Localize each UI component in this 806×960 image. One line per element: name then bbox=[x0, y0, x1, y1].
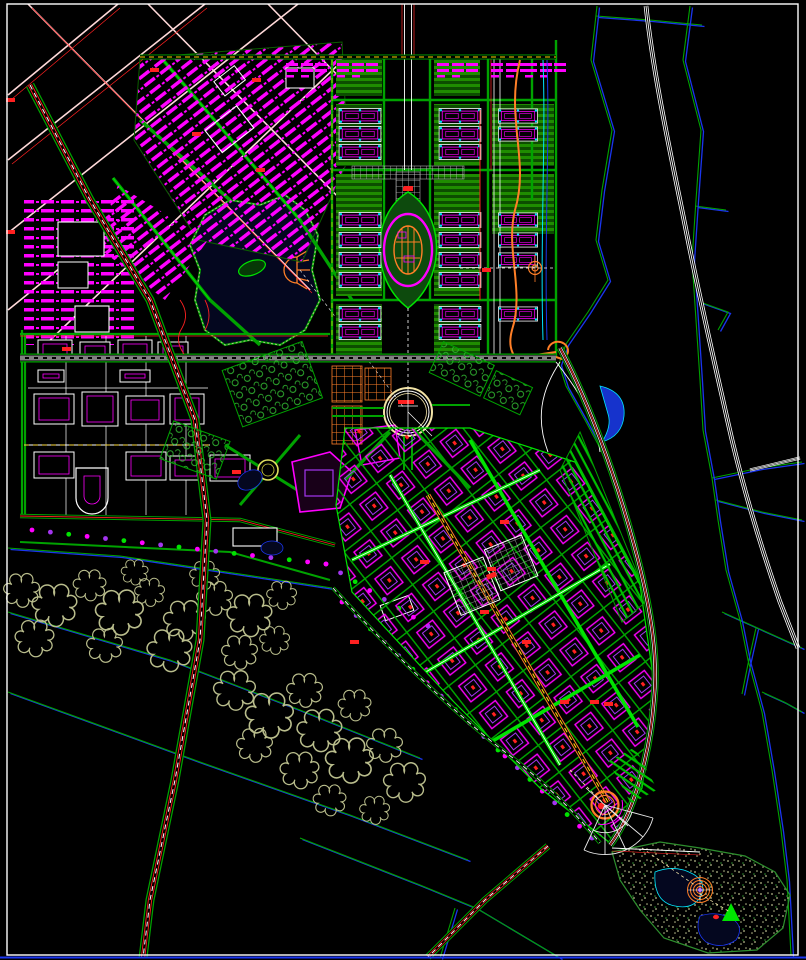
street-tree-dot bbox=[268, 555, 273, 560]
white-building bbox=[38, 370, 64, 382]
red-annotation-mark bbox=[256, 168, 265, 172]
red-annotation-mark bbox=[500, 520, 509, 524]
red-annotation-mark bbox=[604, 702, 613, 706]
red-annotation-mark bbox=[487, 567, 496, 571]
housing-unit bbox=[339, 306, 381, 321]
cad-viewport: { "palette": { "background": "#000000", … bbox=[0, 0, 806, 960]
red-annotation-mark bbox=[350, 640, 359, 644]
housing-unit bbox=[498, 109, 537, 123]
red-annotation-mark bbox=[232, 470, 241, 474]
street-tree-dot bbox=[338, 570, 343, 575]
street-tree-dot bbox=[158, 542, 163, 547]
white-building bbox=[120, 370, 150, 382]
plaza-red-marker bbox=[398, 400, 414, 404]
housing-unit bbox=[339, 144, 381, 159]
red-annotation-mark bbox=[420, 560, 429, 564]
park-circular-pavilion bbox=[688, 878, 713, 903]
small-pond-2 bbox=[261, 541, 283, 555]
park-red-marker bbox=[713, 915, 719, 919]
housing-unit bbox=[498, 253, 537, 267]
red-annotation-mark bbox=[192, 132, 201, 136]
zone-b-white-building-1 bbox=[58, 222, 104, 256]
red-annotation-mark bbox=[522, 640, 531, 644]
master-plan-drawing bbox=[0, 0, 806, 960]
housing-unit bbox=[439, 212, 481, 227]
street-tree-dot bbox=[565, 812, 570, 817]
street-tree-dot bbox=[140, 540, 145, 545]
housing-unit bbox=[439, 306, 481, 321]
west-district-large-hall bbox=[75, 306, 109, 332]
housing-unit bbox=[439, 126, 481, 141]
street-tree-dot bbox=[324, 562, 329, 567]
housing-unit bbox=[339, 324, 381, 339]
housing-unit bbox=[439, 324, 481, 339]
zone-b-white-building-2 bbox=[58, 262, 88, 288]
street-tree-dot bbox=[30, 528, 35, 533]
street-tree-dot bbox=[213, 549, 218, 554]
street-tree-dot bbox=[66, 532, 71, 537]
red-annotation-mark bbox=[482, 268, 491, 272]
housing-unit bbox=[498, 233, 537, 247]
housing-unit bbox=[339, 272, 381, 287]
housing-unit bbox=[339, 232, 381, 247]
white-building bbox=[34, 394, 74, 424]
street-tree-dot bbox=[195, 547, 200, 552]
axis-plaza-cap bbox=[352, 166, 464, 179]
red-annotation-mark bbox=[404, 186, 413, 190]
street-tree-dot bbox=[85, 534, 90, 539]
housing-unit bbox=[439, 144, 481, 159]
housing-unit bbox=[439, 232, 481, 247]
street-tree-dot bbox=[287, 557, 292, 562]
housing-unit bbox=[339, 126, 381, 141]
housing-unit bbox=[339, 108, 381, 123]
street-tree-dot bbox=[577, 824, 582, 829]
housing-unit bbox=[439, 272, 481, 287]
red-annotation-mark bbox=[252, 78, 261, 82]
housing-unit bbox=[498, 213, 537, 227]
red-annotation-mark bbox=[150, 68, 159, 72]
housing-unit bbox=[498, 307, 537, 321]
housing-unit bbox=[339, 212, 381, 227]
white-building bbox=[82, 392, 118, 426]
street-tree-dot bbox=[250, 553, 255, 558]
red-annotation-mark bbox=[560, 700, 569, 704]
street-tree-dot bbox=[177, 545, 182, 550]
housing-unit bbox=[439, 108, 481, 123]
orange-grid-block-1 bbox=[332, 366, 362, 402]
red-annotation-mark bbox=[480, 610, 489, 614]
street-tree-dot bbox=[305, 559, 310, 564]
street-tree-dot bbox=[121, 538, 126, 543]
red-annotation-mark bbox=[590, 700, 599, 704]
street-tree-dot bbox=[103, 536, 108, 541]
street-tree-dot bbox=[48, 530, 53, 535]
housing-unit bbox=[339, 252, 381, 267]
orange-grid-block-3 bbox=[365, 368, 391, 400]
housing-unit bbox=[439, 252, 481, 267]
red-annotation-mark bbox=[62, 347, 71, 351]
street-tree-dot bbox=[232, 551, 237, 556]
